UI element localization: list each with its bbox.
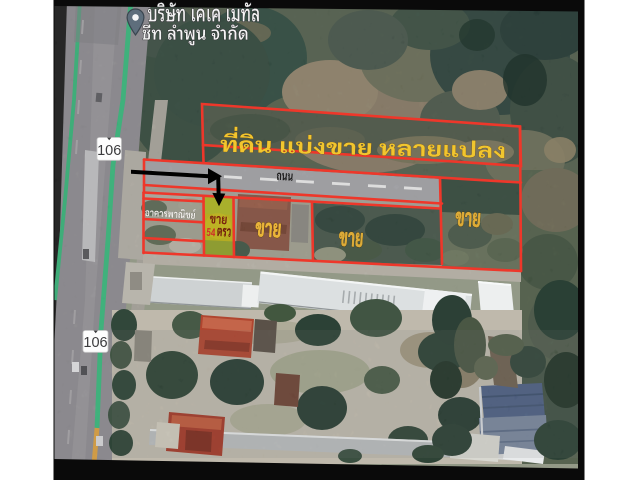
svg-text:106: 106 [83,335,107,351]
svg-text:106: 106 [97,143,121,159]
